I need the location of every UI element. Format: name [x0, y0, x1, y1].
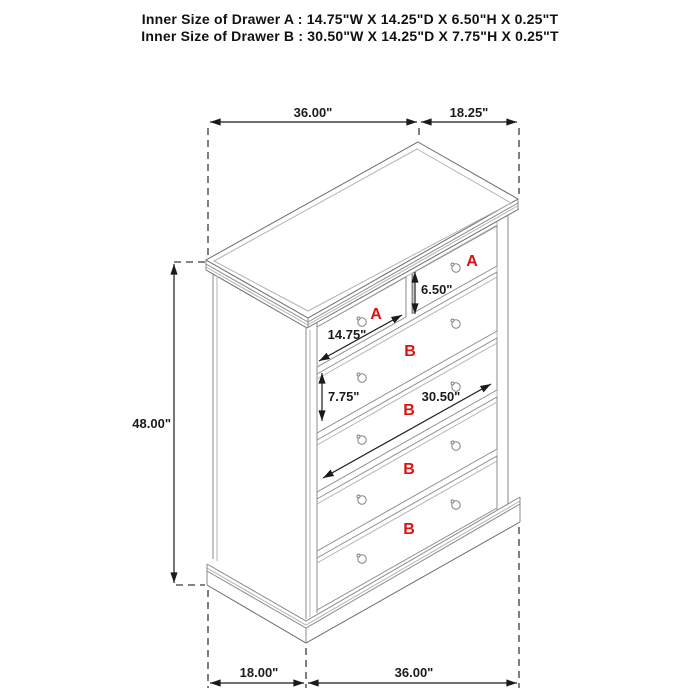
- drawer-b1-label: B: [404, 343, 416, 360]
- bottom-depth-label: 18.00": [240, 665, 279, 680]
- drawer-b-height-label: 7.75": [328, 389, 359, 404]
- top-depth-label: 18.25": [450, 105, 489, 120]
- drawer-a-right-knob: [451, 263, 460, 272]
- drawer-a-width-label: 14.75": [328, 327, 367, 342]
- furniture-dimension-diagram: { "header": { "line1": "Inner Size of Dr…: [0, 0, 700, 700]
- drawer-b4-knob-left: [357, 554, 366, 563]
- chest-of-drawers-diagram: 36.00" 18.25" 48.00" 6.50" 14.75" 7.75" …: [0, 0, 700, 700]
- height-label: 48.00": [132, 416, 171, 431]
- drawer-b2-label: B: [403, 402, 415, 419]
- bottom-width-label: 36.00": [395, 665, 434, 680]
- drawer-a-left-label: A: [370, 306, 382, 323]
- drawer-b1-knob-right: [451, 319, 460, 328]
- drawer-b2-knob-left: [357, 435, 366, 444]
- drawer-b3-label: B: [403, 461, 415, 478]
- drawer-b3-knob-left: [357, 495, 366, 504]
- center-stile: [406, 274, 412, 317]
- drawer-b4-knob-right: [451, 500, 460, 509]
- drawer-b4-label: B: [403, 521, 415, 538]
- chest-side-panel: [213, 274, 310, 619]
- drawer-b3-knob-right: [451, 441, 460, 450]
- top-width-label: 36.00": [294, 105, 333, 120]
- drawer-a-right-label: A: [466, 253, 478, 270]
- drawer-a-height-label: 6.50": [421, 282, 452, 297]
- drawer-b1-knob-left: [357, 373, 366, 382]
- drawer-a-left-knob: [357, 317, 366, 326]
- drawer-b-width-label: 30.50": [422, 389, 461, 404]
